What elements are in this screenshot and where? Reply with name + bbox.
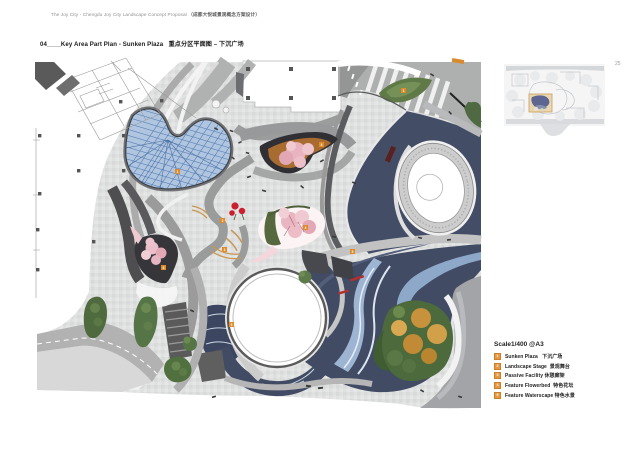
svg-text:5: 5 [352,250,354,254]
svg-text:3: 3 [224,248,226,252]
svg-text:1: 1 [403,89,405,93]
svg-text:2: 2 [222,219,224,223]
svg-text:4: 4 [305,226,307,230]
svg-text:1: 1 [177,170,179,174]
svg-text:4: 4 [163,266,165,270]
svg-text:5: 5 [231,323,233,327]
svg-text:4: 4 [321,143,323,147]
